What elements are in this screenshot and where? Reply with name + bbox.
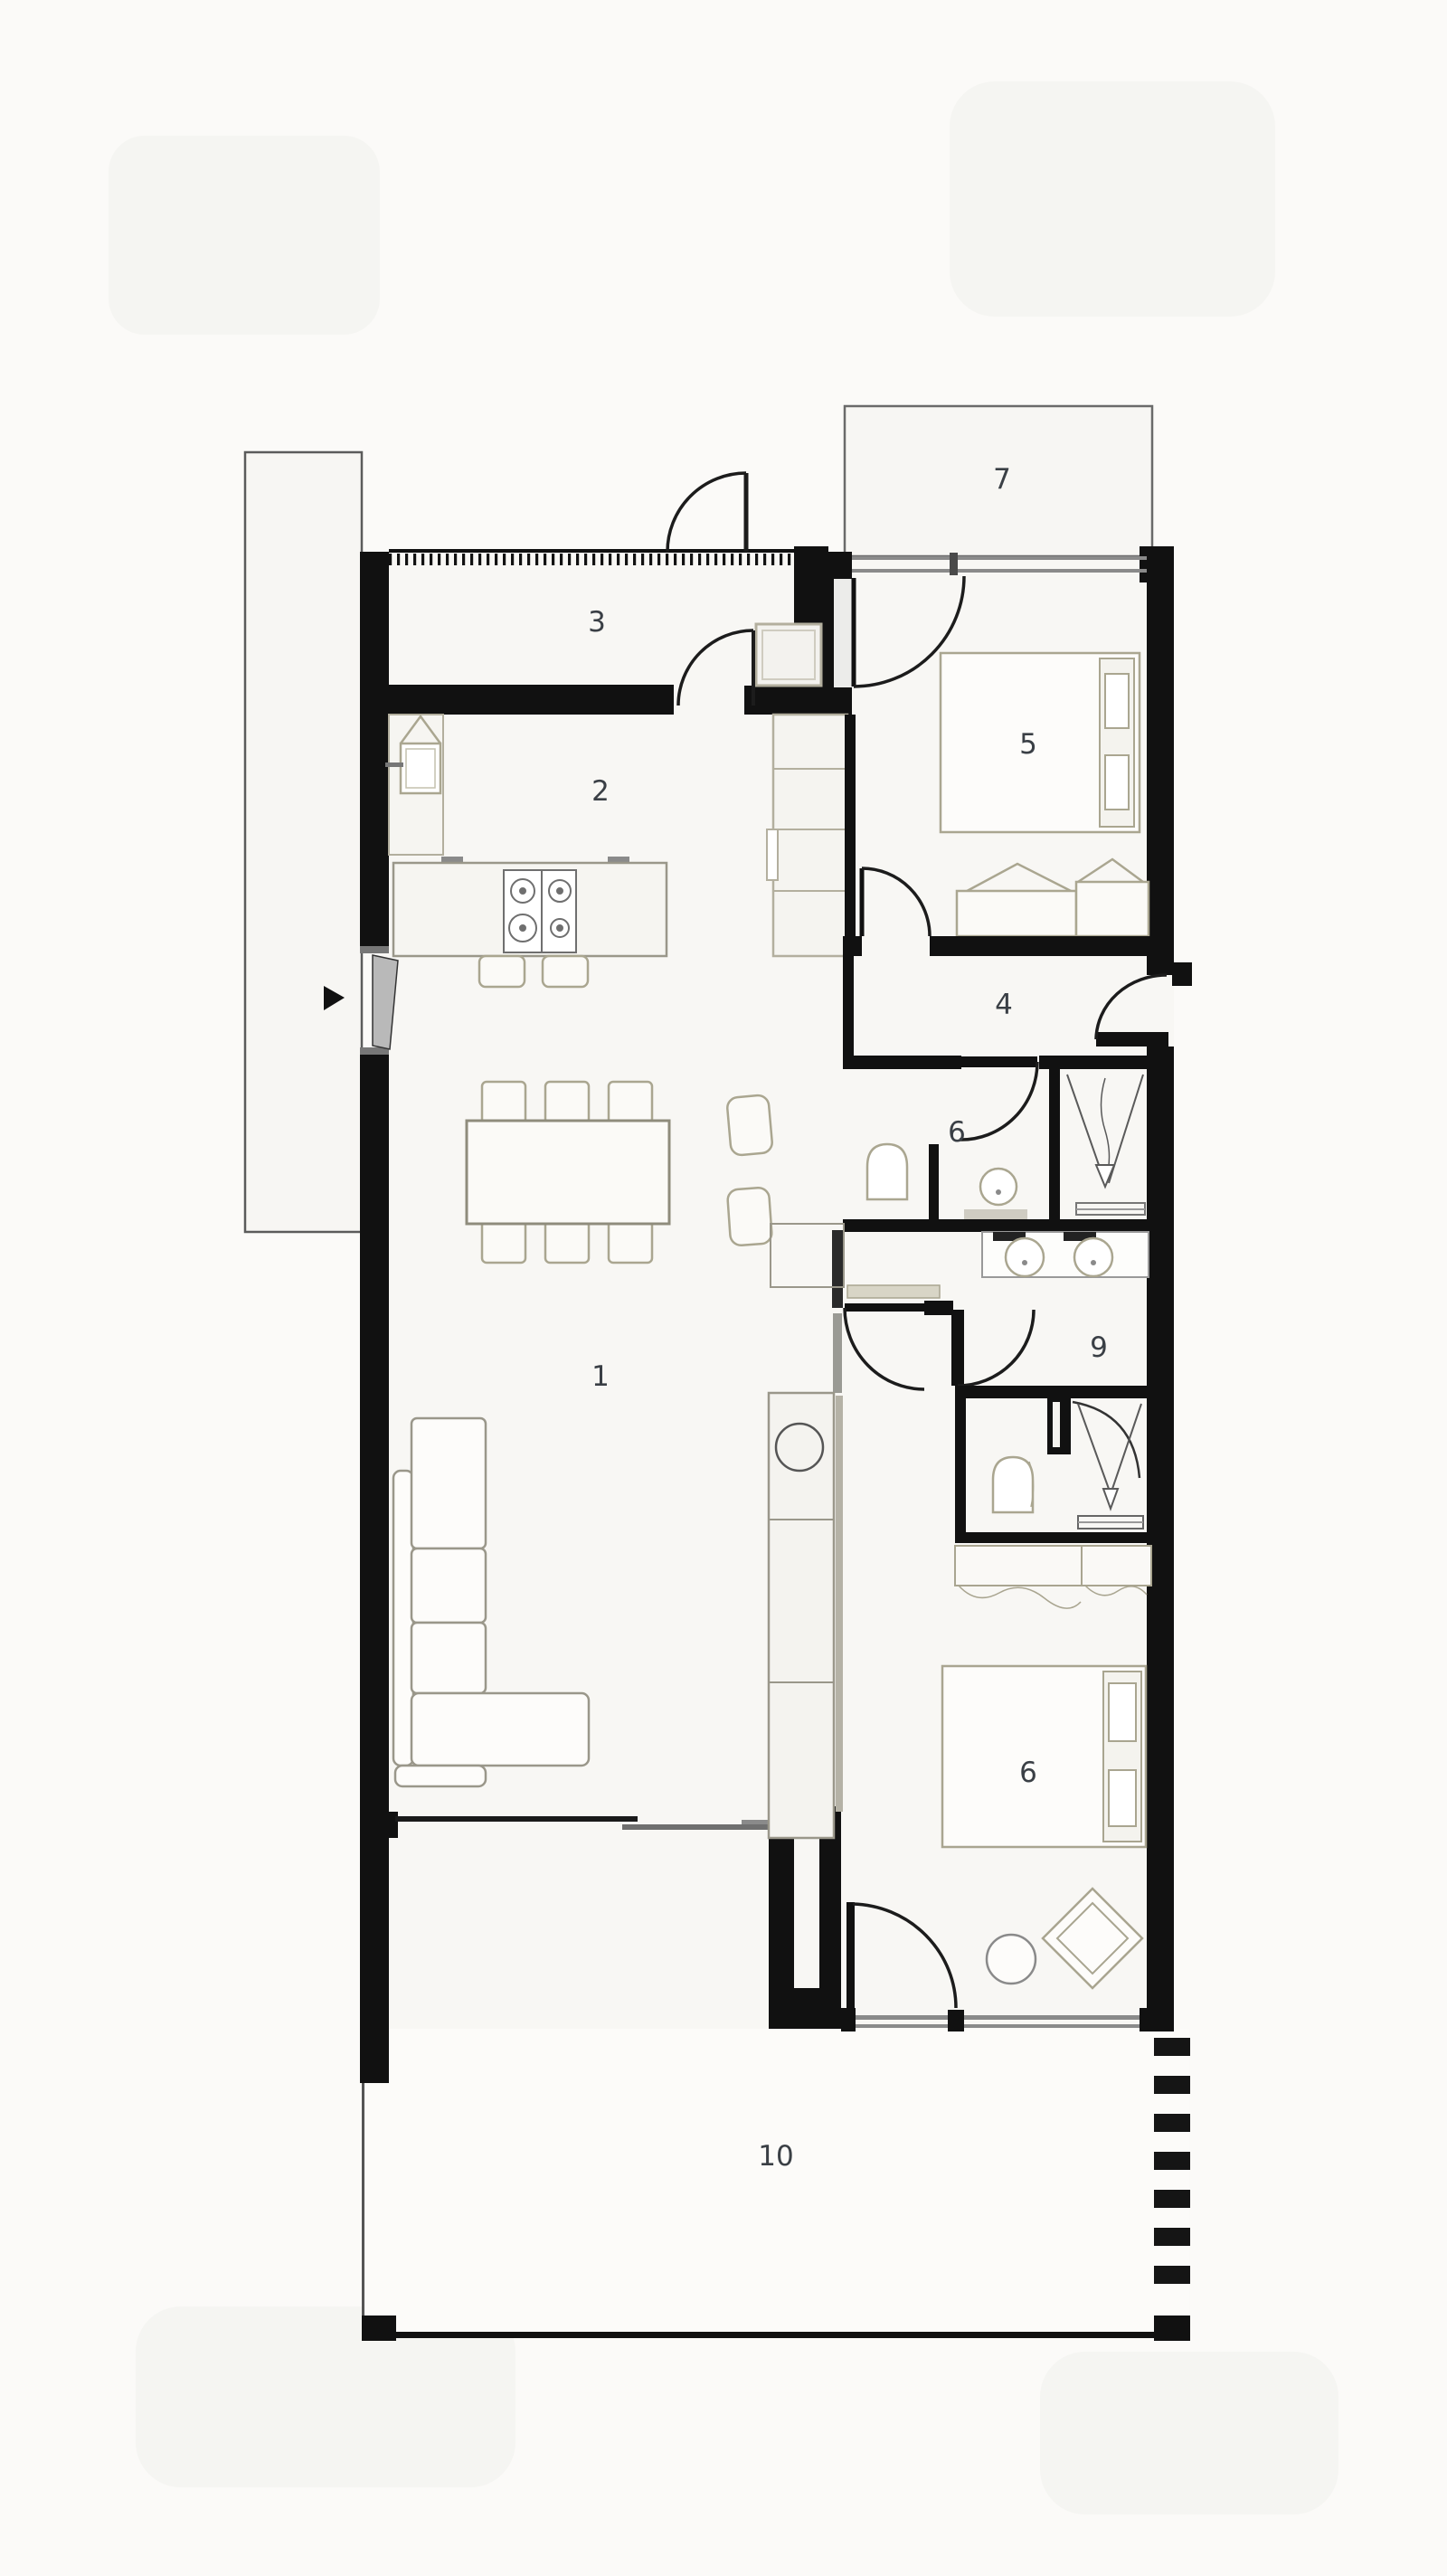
armchair [726, 1094, 772, 1156]
media-console [769, 1393, 843, 1838]
dining-chair [545, 1221, 589, 1263]
room-label-bedroom-bottom: 6 [1019, 1757, 1037, 1789]
room-label-entry: 3 [588, 606, 606, 639]
dining-chair [545, 1082, 589, 1123]
room-label-inner-hall: 9 [1090, 1331, 1108, 1364]
bar-stool [479, 956, 525, 987]
room-label-balcony: 7 [993, 463, 1011, 496]
bar-stool [543, 956, 588, 987]
wall-shelf [847, 1285, 940, 1298]
dining-chair [609, 1082, 652, 1123]
bed-double-lower [942, 1666, 1146, 1847]
dining-chair [482, 1221, 525, 1263]
armchair [727, 1187, 772, 1245]
toilet-icon [867, 1144, 907, 1199]
sink-icon [1074, 1238, 1112, 1276]
vanity-twin-sinks [982, 1232, 1149, 1277]
dining-chair [482, 1082, 525, 1123]
kitchen-counter [385, 715, 443, 855]
kitchen-tall-cabinets [767, 715, 847, 956]
cooktop-icon [504, 870, 576, 952]
toilet-icon [993, 1457, 1033, 1512]
bed-double [941, 653, 1140, 832]
side-table [987, 1935, 1036, 1984]
terrace [364, 2029, 1189, 2332]
side-path [245, 452, 362, 1232]
washbasin-icon [980, 1169, 1017, 1205]
room-label-terrace: 10 [758, 2140, 793, 2173]
hall4-left-wall [843, 936, 854, 1069]
entrance-door [667, 473, 746, 552]
room-label-bedroom-top: 5 [1019, 728, 1037, 761]
room-label-bathroom: 6 [948, 1116, 966, 1149]
dining-set [467, 1082, 669, 1263]
dining-table [467, 1121, 669, 1224]
room-label-kitchen: 2 [591, 775, 610, 808]
entry-closet [756, 624, 821, 686]
room-label-living: 1 [591, 1360, 610, 1393]
floor-plan-canvas: 1 2 3 4 5 6 7 9 6 10 [0, 0, 1447, 2576]
sink-icon [1006, 1238, 1044, 1276]
dining-chair [609, 1221, 652, 1263]
floor-plan-drawing: 1 2 3 4 5 6 7 9 6 10 [0, 0, 1447, 2576]
kitchen-bedroom-wall [845, 715, 856, 936]
room-label-hallway: 4 [995, 989, 1013, 1021]
